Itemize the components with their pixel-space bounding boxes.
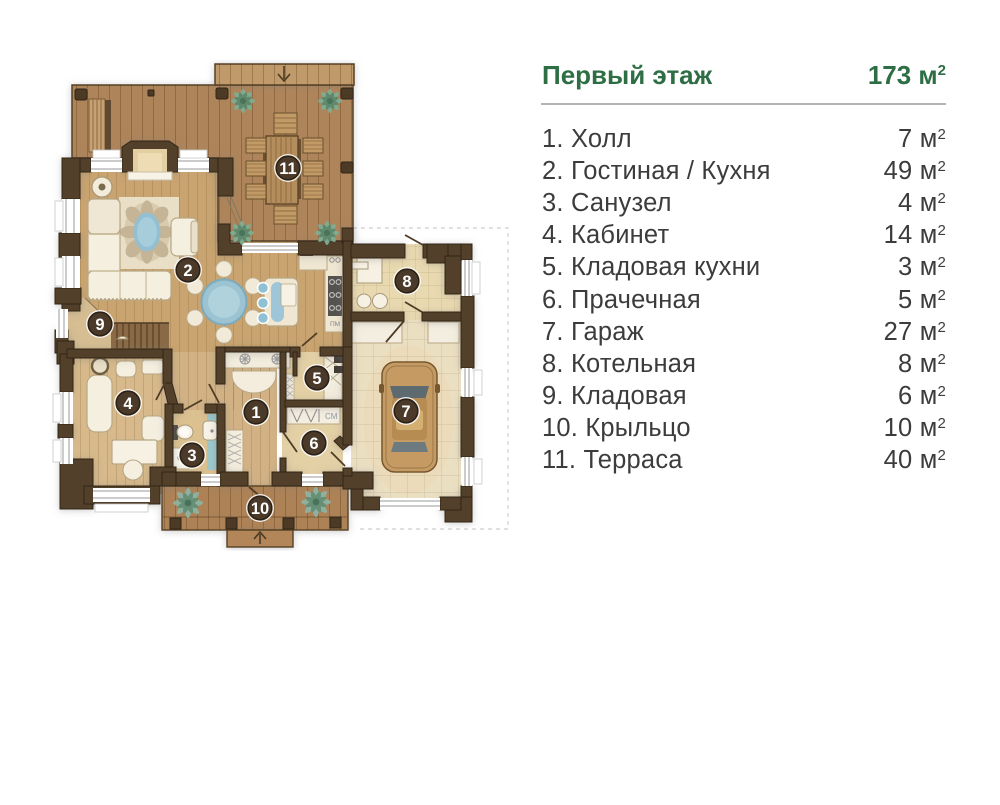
svg-text:Первый этаж: Первый этаж <box>542 60 713 90</box>
svg-text:1. Холл: 1. Холл <box>542 125 632 153</box>
svg-text:7: 7 <box>401 403 410 421</box>
svg-text:10: 10 <box>251 500 269 518</box>
svg-text:27 м2: 27 м2 <box>884 318 946 346</box>
svg-text:3: 3 <box>187 447 196 465</box>
svg-text:49 м2: 49 м2 <box>884 157 946 185</box>
svg-text:ПМ: ПМ <box>330 321 340 328</box>
svg-text:6. Прачечная: 6. Прачечная <box>542 286 701 314</box>
svg-text:4: 4 <box>123 395 133 413</box>
svg-text:11. Терраса: 11. Терраса <box>542 446 683 474</box>
svg-text:6: 6 <box>309 435 318 453</box>
svg-text:5. Кладовая кухни: 5. Кладовая кухни <box>542 253 760 281</box>
svg-text:173 м2: 173 м2 <box>868 60 946 90</box>
svg-text:4. Кабинет: 4. Кабинет <box>542 221 669 249</box>
svg-text:9. Кладовая: 9. Кладовая <box>542 382 687 410</box>
svg-text:40 м2: 40 м2 <box>884 446 946 474</box>
svg-text:7. Гараж: 7. Гараж <box>542 318 644 346</box>
svg-text:8. Котельная: 8. Котельная <box>542 350 696 378</box>
svg-text:10 м2: 10 м2 <box>884 414 946 442</box>
svg-text:10. Крыльцо: 10. Крыльцо <box>542 414 691 442</box>
svg-text:СМ: СМ <box>325 412 338 421</box>
svg-text:3. Санузел: 3. Санузел <box>542 189 672 217</box>
svg-text:2. Гостиная / Кухня: 2. Гостиная / Кухня <box>542 157 771 185</box>
svg-text:14 м2: 14 м2 <box>884 221 946 249</box>
svg-text:9: 9 <box>95 316 104 334</box>
svg-text:11: 11 <box>279 160 296 178</box>
svg-text:8: 8 <box>402 273 411 291</box>
svg-text:2: 2 <box>183 262 192 280</box>
svg-text:5: 5 <box>312 370 321 388</box>
svg-text:1: 1 <box>251 404 260 422</box>
